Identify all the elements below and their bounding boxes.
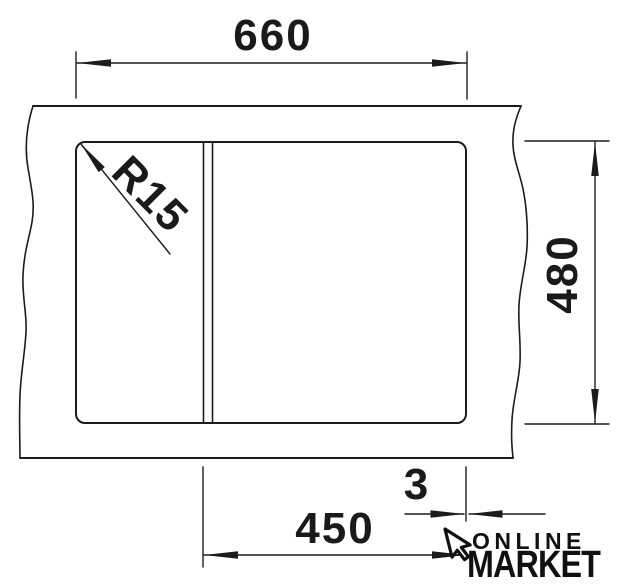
dim-480-arrow-top xyxy=(591,142,599,176)
break-line-left xyxy=(20,106,34,458)
dim-660-arrow-right xyxy=(432,59,466,67)
dim-480-arrow-bottom xyxy=(591,389,599,423)
drawing-linework xyxy=(0,0,628,587)
dim-label-3: 3 xyxy=(404,463,430,507)
watermark-logo: ONLINE MARKET xyxy=(436,503,626,585)
cursor-icon xyxy=(436,523,480,581)
sink-dimension-drawing: 660 480 R15 450 3 ONLINE MARKET xyxy=(0,0,628,587)
dim-label-480: 480 xyxy=(541,234,585,313)
dim-label-660: 660 xyxy=(233,14,312,58)
dim-450-arrow-left xyxy=(204,551,238,559)
break-line-right xyxy=(512,106,528,458)
dim-label-450: 450 xyxy=(295,507,374,551)
watermark-logo-line2: MARKET xyxy=(467,546,600,584)
dim-660-arrow-left xyxy=(77,59,111,67)
r15-arrow xyxy=(81,144,105,172)
